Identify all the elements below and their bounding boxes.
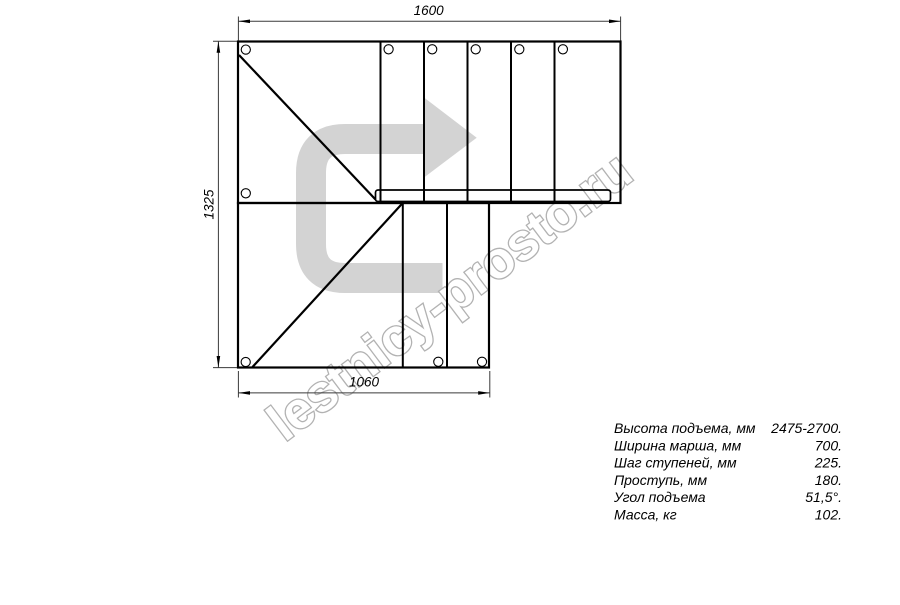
svg-text:51,5°.: 51,5°. [805, 489, 842, 505]
svg-text:Ширина марша, мм: Ширина марша, мм [614, 437, 742, 453]
svg-text:Высота подъема, мм: Высота подъема, мм [614, 420, 756, 436]
svg-text:Угол подъема: Угол подъема [613, 489, 706, 505]
svg-text:1325: 1325 [202, 189, 217, 220]
svg-text:2475-2700.: 2475-2700. [770, 420, 842, 436]
svg-text:700.: 700. [815, 437, 842, 453]
svg-text:225.: 225. [814, 455, 842, 471]
svg-text:180.: 180. [815, 472, 842, 488]
svg-text:Масса, кг: Масса, кг [614, 507, 677, 523]
svg-text:Шаг ступеней, мм: Шаг ступеней, мм [614, 455, 737, 471]
svg-text:1060: 1060 [349, 375, 380, 390]
svg-text:1600: 1600 [414, 3, 445, 18]
svg-text:Проступь, мм: Проступь, мм [614, 472, 708, 488]
svg-text:102.: 102. [815, 507, 842, 523]
